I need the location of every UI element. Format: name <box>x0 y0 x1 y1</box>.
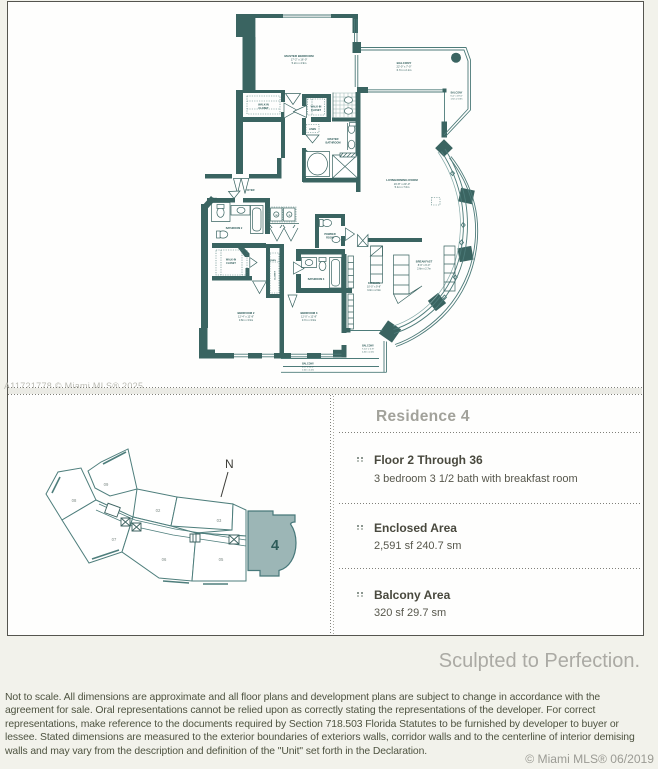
svg-text:02: 02 <box>156 508 161 513</box>
svg-text:03: 03 <box>217 518 222 523</box>
svg-text:07: 07 <box>112 537 117 542</box>
svg-text:05: 05 <box>219 557 224 562</box>
svg-text:06: 06 <box>162 557 167 562</box>
svg-text:08: 08 <box>72 498 77 503</box>
svg-text:09: 09 <box>104 482 109 487</box>
svg-text:N: N <box>225 457 234 471</box>
svg-text:4: 4 <box>271 538 279 554</box>
